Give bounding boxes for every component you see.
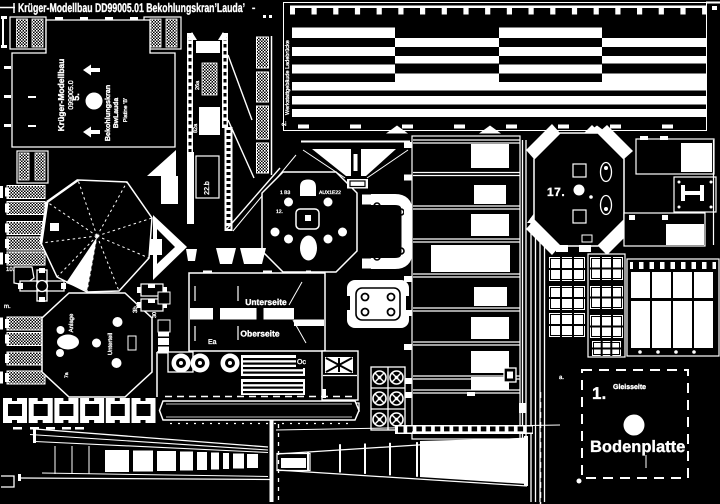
svg-text:3b.: 3b.	[132, 304, 139, 313]
svg-text:26a: 26a	[195, 80, 201, 90]
svg-text:Krüger-Modellbau: Krüger-Modellbau	[56, 59, 66, 132]
svg-text:Werkstattgebäude Ladebrücke: Werkstattgebäude Ladebrücke	[285, 40, 291, 115]
svg-text:Unterteil: Unterteil	[107, 333, 114, 355]
svg-text:82a: 82a	[193, 123, 199, 133]
svg-text:Oc: Oc	[297, 359, 306, 366]
svg-text:10.: 10.	[6, 266, 15, 273]
svg-text:a.: a.	[559, 375, 564, 381]
svg-text:1.: 1.	[592, 384, 606, 403]
svg-text:Unterseite: Unterseite	[245, 297, 287, 307]
svg-text:5.: 5.	[71, 93, 81, 101]
svg-text:Platine ’B’: Platine ’B’	[123, 98, 129, 122]
svg-text:2.: 2.	[281, 121, 288, 126]
svg-text:Oberseite: Oberseite	[240, 329, 279, 339]
svg-text:17.: 17.	[547, 185, 565, 199]
svg-text:1 B3: 1 B3	[280, 190, 291, 196]
svg-text:Krüger-Modellbau DD99005.01 Be: Krüger-Modellbau DD99005.01 Bekohlungskr…	[18, 1, 245, 15]
svg-text:Bekohlungskran: Bekohlungskran	[103, 85, 112, 141]
svg-text:BwLauda: BwLauda	[113, 98, 120, 128]
svg-text:AUX1E22: AUX1E22	[319, 190, 341, 196]
svg-text:30.: 30.	[152, 310, 158, 318]
svg-text:7a: 7a	[64, 372, 70, 378]
svg-text:Ea: Ea	[208, 339, 217, 346]
svg-text:12.: 12.	[276, 209, 283, 215]
svg-text:m.: m.	[4, 304, 11, 310]
svg-text:22.b: 22.b	[203, 181, 211, 195]
svg-text:Gleisseite: Gleisseite	[613, 383, 646, 391]
svg-text:-: -	[252, 3, 255, 14]
svg-text:Anlage: Anlage	[68, 313, 75, 332]
svg-text:Bodenplatte: Bodenplatte	[590, 438, 685, 456]
